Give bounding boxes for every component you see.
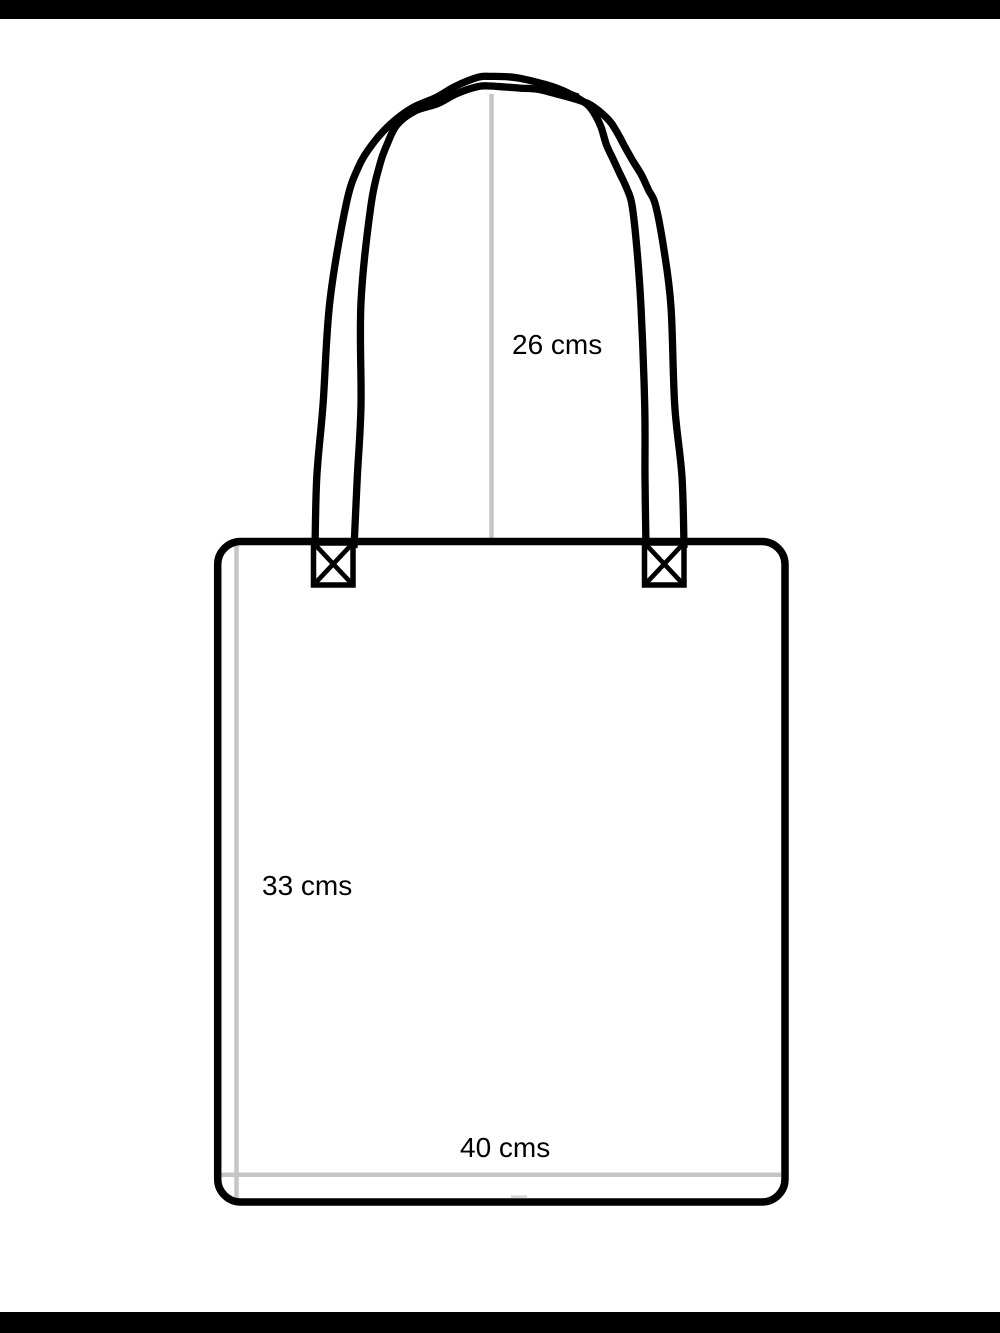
svg-text:33 cms: 33 cms bbox=[262, 870, 352, 901]
svg-text:26 cms: 26 cms bbox=[512, 329, 602, 360]
svg-text:40 cms: 40 cms bbox=[460, 1132, 550, 1163]
